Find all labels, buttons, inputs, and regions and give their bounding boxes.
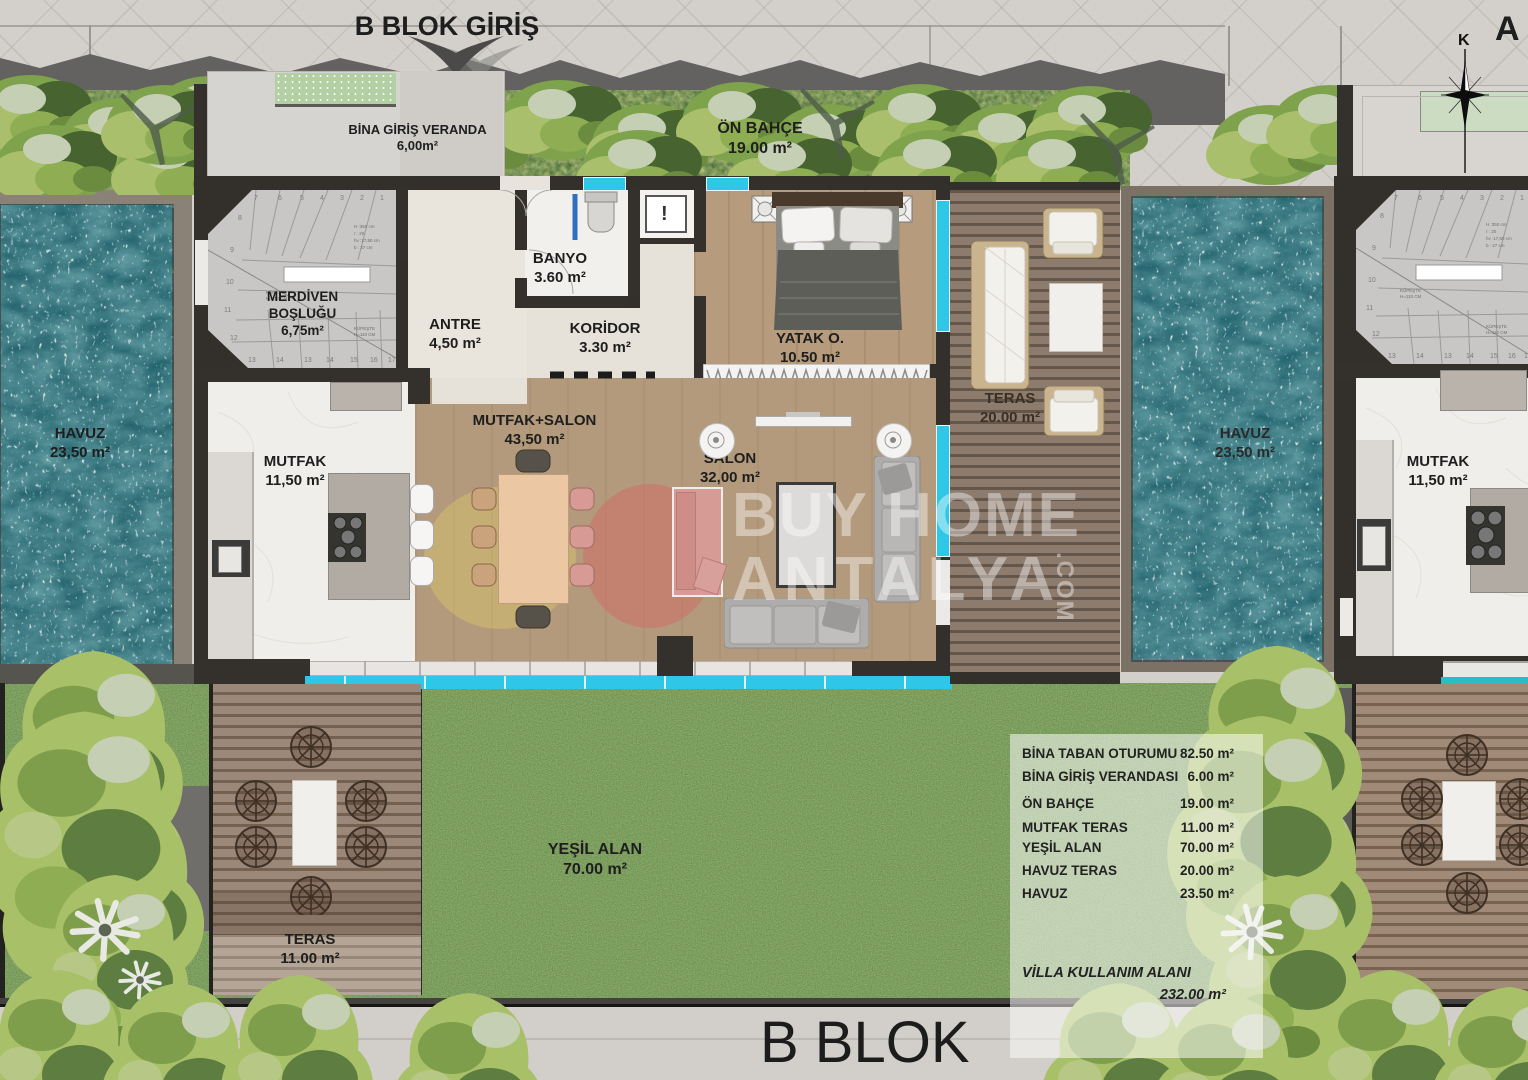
svg-text:17: 17 (1524, 353, 1528, 360)
svg-text:3: 3 (1480, 195, 1484, 202)
svg-text:8: 8 (1380, 213, 1384, 220)
svg-text:15: 15 (1490, 353, 1498, 360)
svg-text:H=110 CM: H=110 CM (1400, 294, 1422, 299)
svg-text:!: ! (661, 203, 668, 225)
svg-text:4: 4 (1460, 195, 1464, 202)
svg-text:13: 13 (304, 357, 312, 364)
svg-text:H :350 cm: H :350 cm (1486, 222, 1507, 227)
svg-text:H=110 CM: H=110 CM (1486, 330, 1508, 335)
svg-text:13: 13 (1388, 353, 1396, 360)
svg-text:14: 14 (276, 357, 284, 364)
svg-text:6: 6 (1418, 195, 1422, 202)
svg-text:9: 9 (1372, 245, 1376, 252)
svg-text:10: 10 (226, 279, 234, 286)
svg-text:11: 11 (1366, 305, 1373, 312)
svg-text:2: 2 (360, 195, 364, 202)
svg-text:16: 16 (370, 357, 378, 364)
svg-text:7: 7 (1394, 195, 1398, 202)
svg-text:6: 6 (278, 195, 282, 202)
svg-text:14: 14 (1466, 353, 1474, 360)
svg-text:11: 11 (224, 307, 231, 314)
svg-text:14: 14 (326, 357, 334, 364)
svg-text:5: 5 (300, 195, 304, 202)
svg-text:b : 27 cm: b : 27 cm (1486, 243, 1505, 248)
svg-text:1: 1 (1520, 195, 1524, 202)
svg-text:13: 13 (1444, 353, 1452, 360)
svg-text:13: 13 (248, 357, 256, 364)
svg-text:hv :17,50 cm: hv :17,50 cm (1486, 236, 1512, 241)
svg-text:17: 17 (388, 357, 396, 364)
svg-text:KÜPEŞTE: KÜPEŞTE (1400, 287, 1421, 293)
svg-text:12: 12 (1372, 331, 1380, 338)
svg-text:10: 10 (1368, 277, 1376, 284)
svg-text:7: 7 (254, 195, 258, 202)
svg-text:3: 3 (340, 195, 344, 202)
svg-text:4: 4 (320, 195, 324, 202)
svg-text:2: 2 (1500, 195, 1504, 202)
svg-text:KÜPEŞTE: KÜPEŞTE (1486, 323, 1507, 329)
svg-text:r : 20: r : 20 (354, 231, 365, 236)
svg-text:K: K (1458, 32, 1470, 49)
svg-text:1: 1 (380, 195, 384, 202)
svg-text:15: 15 (350, 357, 358, 364)
svg-text:b : 27 cm: b : 27 cm (354, 245, 373, 250)
svg-text:5: 5 (1440, 195, 1444, 202)
svg-text:9: 9 (230, 247, 234, 254)
svg-text:8: 8 (238, 215, 242, 222)
svg-text:H :350 cm: H :350 cm (354, 224, 375, 229)
svg-text:r : 20: r : 20 (1486, 229, 1497, 234)
svg-text:hv :17,50 cm: hv :17,50 cm (354, 238, 380, 243)
svg-text:14: 14 (1416, 353, 1424, 360)
svg-text:16: 16 (1508, 353, 1516, 360)
svg-text:12: 12 (230, 335, 238, 342)
